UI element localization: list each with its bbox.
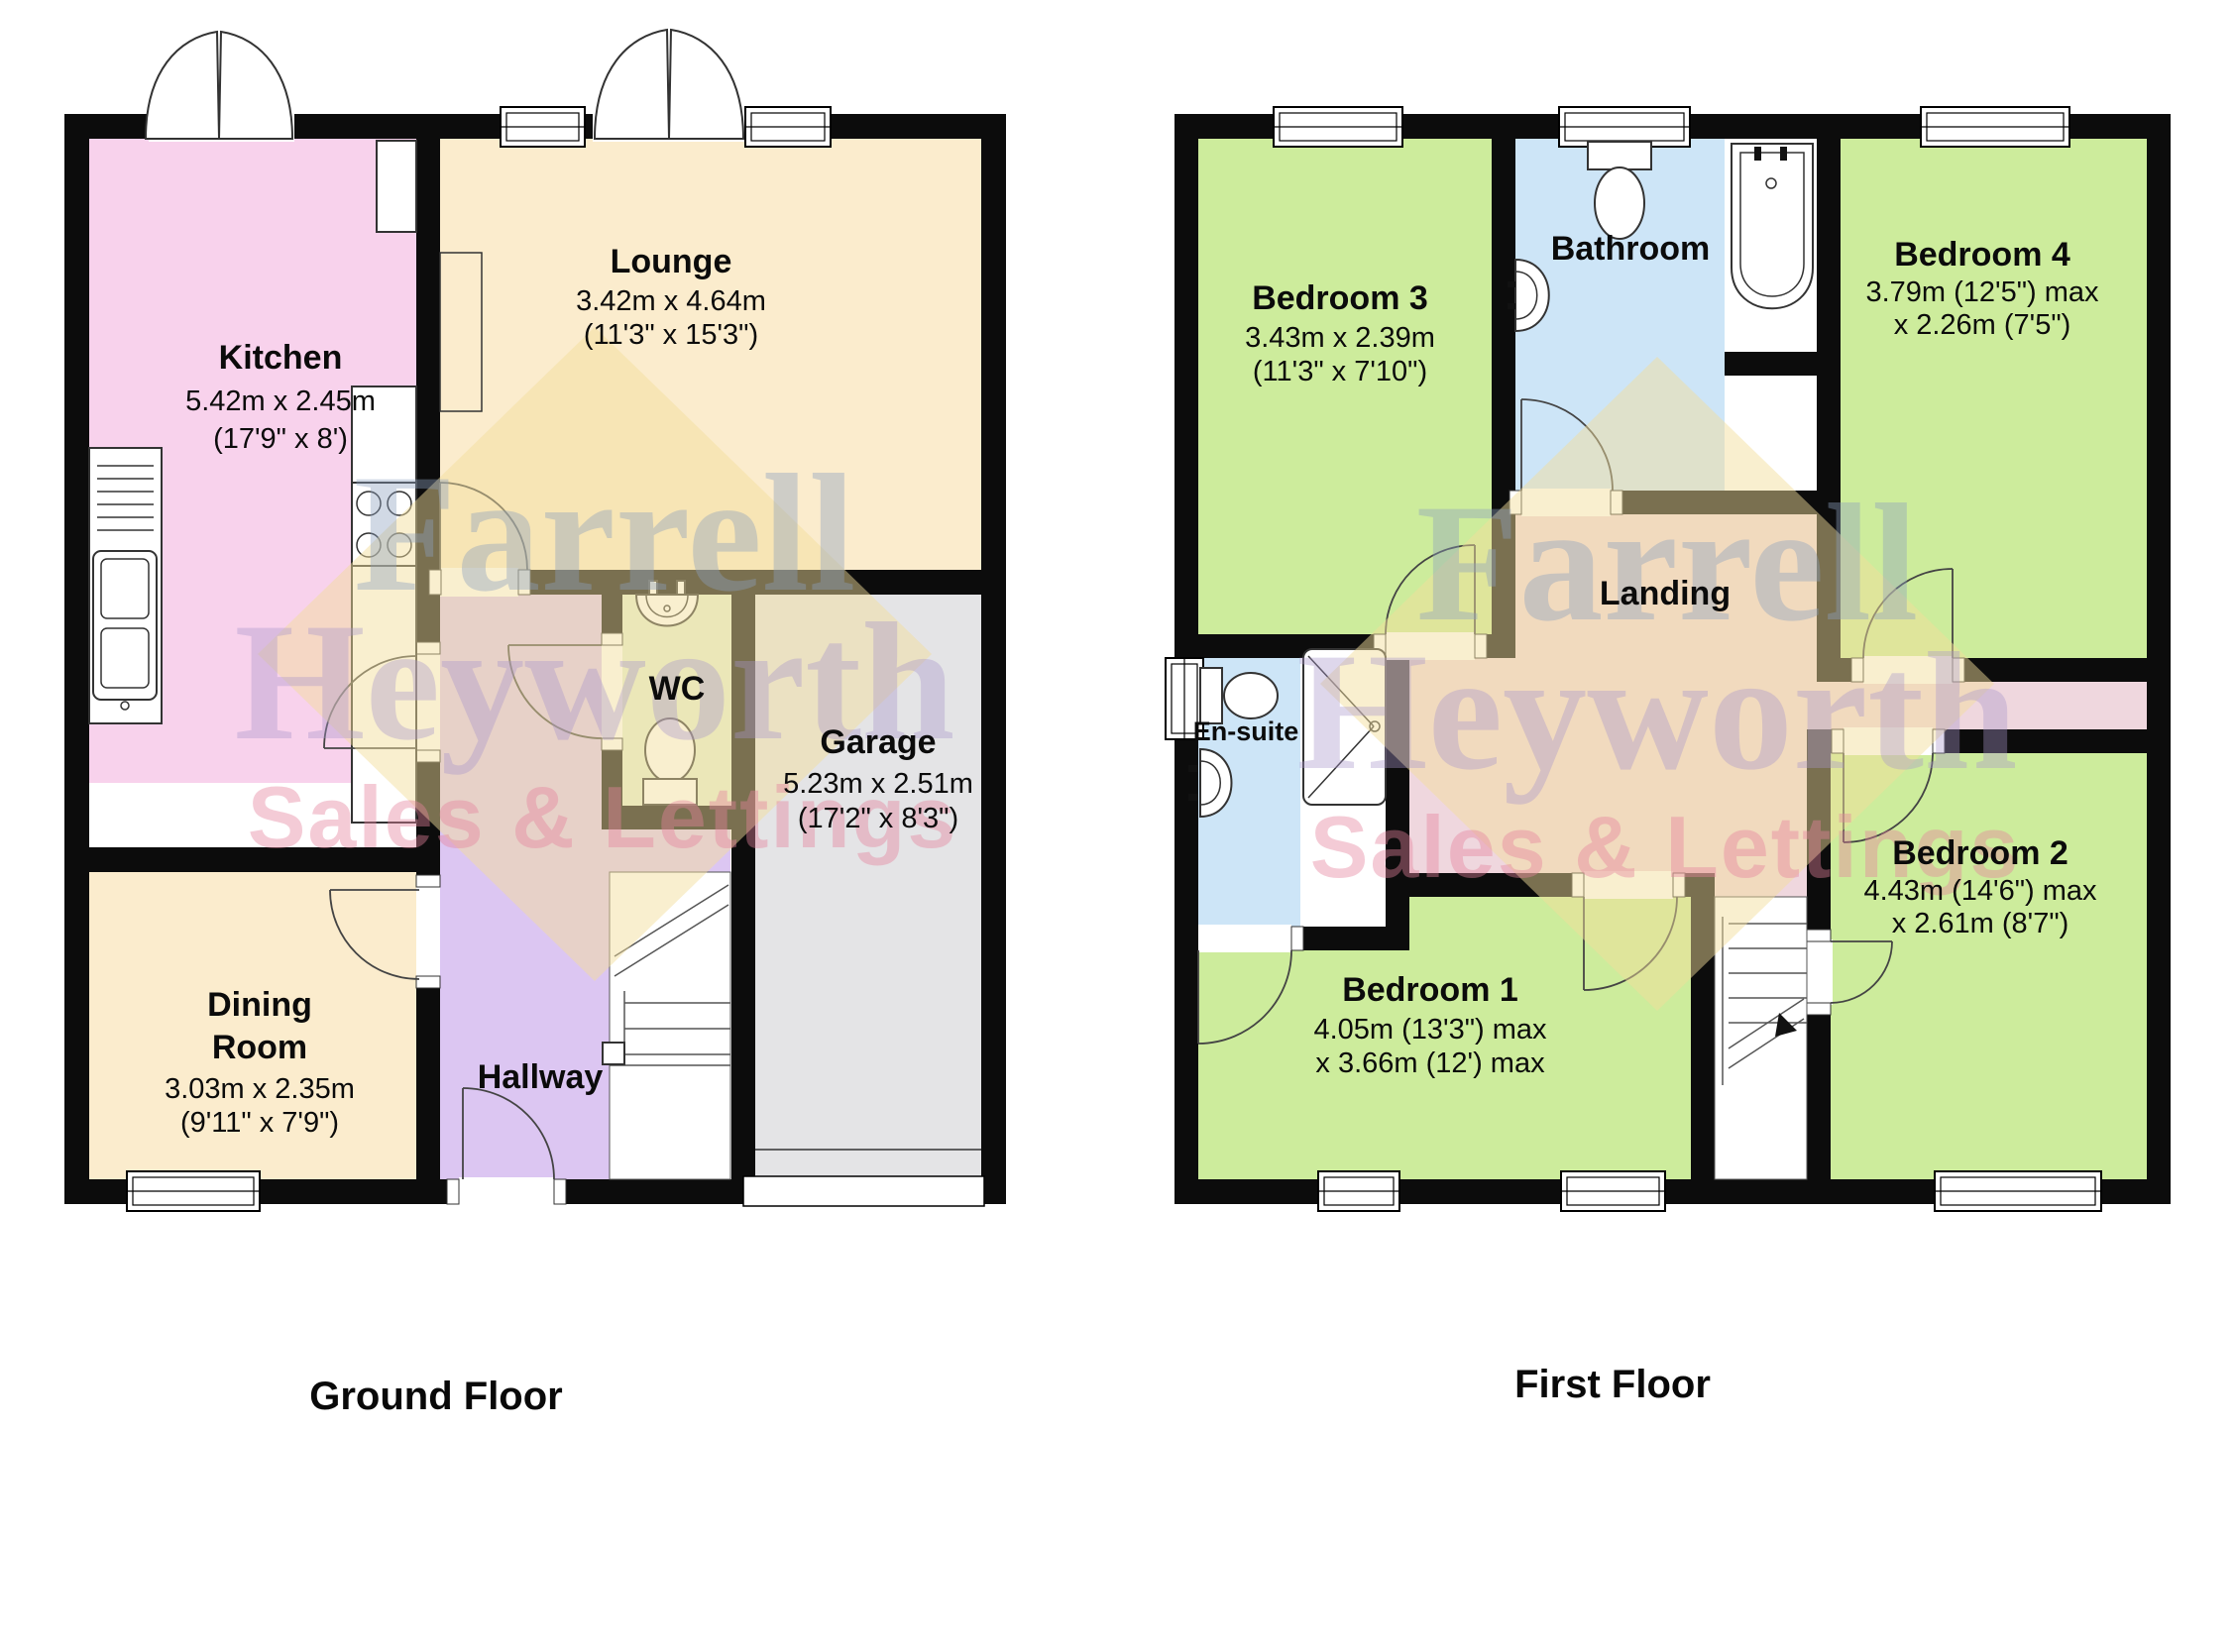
bedroom3-label: Bedroom 3 bbox=[1252, 279, 1428, 317]
bedroom4-dim-2: x 2.26m (7'5") bbox=[1894, 309, 2071, 341]
lounge-window-2 bbox=[745, 107, 831, 147]
bedroom1-dim-1: 4.05m (13'3") max bbox=[1313, 1014, 1547, 1046]
bedroom3-dim-imperial: (11'3" x 7'10") bbox=[1253, 356, 1427, 387]
lounge-window-1 bbox=[501, 107, 585, 147]
bedroom2-dim-1: 4.43m (14'6") max bbox=[1863, 875, 2097, 907]
kitchen-double-door-icon bbox=[146, 32, 292, 139]
bedroom4-label: Bedroom 4 bbox=[1894, 236, 2070, 274]
lounge-double-door-icon bbox=[595, 30, 743, 139]
floorplan-canvas: Farrell Heyworth Sales & Lettings Farrel… bbox=[0, 0, 2236, 1652]
garage-label: Garage bbox=[820, 723, 936, 761]
bedroom2-window bbox=[1935, 1171, 2101, 1211]
lounge-dim-imperial: (11'3" x 15'3") bbox=[584, 319, 758, 351]
bedroom1-window-1 bbox=[1318, 1171, 1399, 1211]
dining-window bbox=[127, 1171, 260, 1211]
dining-dim-metric: 3.03m x 2.35m bbox=[165, 1073, 355, 1105]
dining-dim-imperial: (9'11" x 7'9") bbox=[180, 1107, 339, 1139]
wc-label: WC bbox=[649, 670, 706, 708]
kitchen-dim-metric: 5.42m x 2.45m bbox=[185, 385, 376, 417]
bedroom1-dim-2: x 3.66m (12') max bbox=[1315, 1047, 1545, 1079]
floorplan-document: Farrell Heyworth Sales & Lettings Farrel… bbox=[0, 0, 2236, 1652]
bedroom3-window bbox=[1274, 107, 1402, 147]
garage-dim-imperial: (17'2" x 8'3") bbox=[798, 803, 958, 834]
ground-floor-title: Ground Floor bbox=[309, 1375, 563, 1418]
dining-label-line2: Room bbox=[212, 1029, 307, 1066]
lounge-dim-metric: 3.42m x 4.64m bbox=[576, 285, 766, 317]
garage-door bbox=[743, 1176, 984, 1206]
bedroom4-window bbox=[1921, 107, 2069, 147]
watermark-line2: Heyworth bbox=[1296, 618, 2017, 805]
landing-label: Landing bbox=[1600, 575, 1731, 612]
kitchen-label: Kitchen bbox=[219, 339, 343, 377]
bedroom2-dim-2: x 2.61m (8'7") bbox=[1892, 908, 2069, 939]
bathroom-label: Bathroom bbox=[1551, 230, 1711, 268]
garage-dim-metric: 5.23m x 2.51m bbox=[783, 768, 973, 800]
kitchen-dim-imperial: (17'9" x 8') bbox=[213, 423, 348, 455]
dining-label-line1: Dining bbox=[207, 986, 312, 1024]
ensuite-label: En-suite bbox=[1193, 716, 1299, 746]
kitchen-sink-icon bbox=[93, 551, 157, 710]
bedroom4-dim-1: 3.79m (12'5") max bbox=[1865, 276, 2099, 308]
bedroom1-label: Bedroom 1 bbox=[1342, 971, 1518, 1009]
bedroom3-dim-metric: 3.43m x 2.39m bbox=[1245, 322, 1435, 354]
bath-icon bbox=[1732, 144, 1813, 308]
ensuite-toilet-icon bbox=[1200, 668, 1278, 723]
lounge-label: Lounge bbox=[611, 243, 732, 280]
bedroom2-label: Bedroom 2 bbox=[1892, 834, 2068, 872]
first-floor-title: First Floor bbox=[1514, 1363, 1711, 1406]
kitchen-unit-icon bbox=[377, 141, 416, 232]
bedroom1-window-2 bbox=[1561, 1171, 1665, 1211]
hallway-label: Hallway bbox=[478, 1058, 604, 1096]
